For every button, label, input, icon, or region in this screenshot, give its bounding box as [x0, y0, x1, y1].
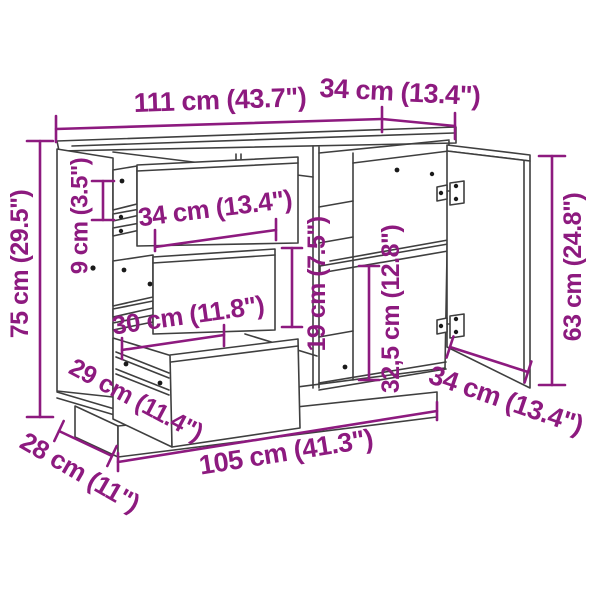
- door-hinge-top-icon: [437, 181, 464, 205]
- diagram-canvas: 111 cm (43.7") 34 cm (13.4") 75 cm (29.5…: [0, 0, 600, 600]
- dim-label-height: 75 cm (29.5"): [6, 190, 34, 339]
- cabinet-door-open: [437, 145, 530, 388]
- door-hinge-bottom-icon: [437, 314, 464, 338]
- furniture-dimension-diagram: 111 cm (43.7") 34 cm (13.4") 75 cm (29.5…: [0, 0, 600, 600]
- cabinet-top-slab: [57, 127, 456, 151]
- dim-label-top-width: 111 cm (43.7"): [133, 82, 306, 118]
- dim-line-lower-compartment-height: [359, 266, 379, 380]
- dim-label-left-inner: 9 cm (3.5"): [67, 158, 94, 275]
- dim-label-middle-drawer-height: 19 cm (7.5"): [303, 216, 331, 351]
- dim-line-middle-drawer-height: [282, 248, 302, 327]
- dim-label-top-depth: 34 cm (13.4"): [319, 73, 481, 111]
- dim-label-door-height: 63 cm (24.8"): [559, 193, 587, 342]
- dim-label-lower-compartment-height: 32,5 cm (12.8"): [377, 225, 405, 394]
